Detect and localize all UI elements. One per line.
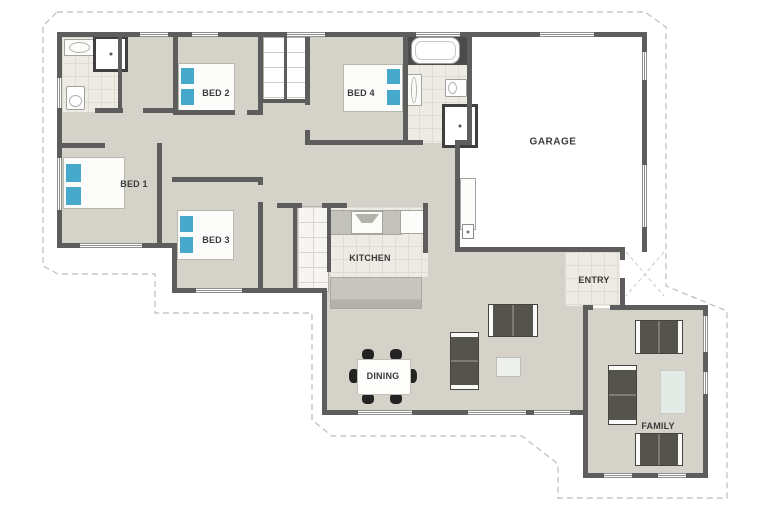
- bathroom-vanity-sink: [406, 74, 422, 106]
- wall-segment: [423, 203, 428, 253]
- window: [196, 288, 242, 293]
- window: [658, 473, 686, 478]
- pillow: [387, 90, 400, 105]
- pillow: [180, 216, 193, 232]
- wall-segment: [263, 99, 308, 103]
- wall-segment: [455, 140, 460, 252]
- bed2-bed: [178, 63, 235, 111]
- pillow: [387, 69, 400, 84]
- wall-segment: [172, 243, 177, 293]
- wall-segment: [258, 177, 263, 185]
- bed2-label: BED 2: [202, 88, 230, 98]
- kitchen-label: KITCHEN: [349, 253, 390, 263]
- bed3-label: BED 3: [202, 235, 230, 245]
- pillow: [66, 187, 81, 205]
- window: [534, 410, 570, 415]
- window: [192, 32, 218, 37]
- wall-segment: [95, 108, 123, 113]
- window: [703, 316, 708, 352]
- pillow: [181, 68, 194, 84]
- wall-segment: [157, 143, 162, 248]
- pillow: [180, 237, 193, 253]
- wall-segment: [277, 203, 302, 208]
- family-sofa-top: [635, 320, 683, 354]
- living-sofa-top: [488, 304, 538, 337]
- wall-segment: [284, 37, 287, 99]
- laundry-bench: [460, 178, 476, 230]
- wall-segment: [305, 140, 405, 145]
- stove-cooktop: [351, 211, 383, 234]
- wall-segment: [322, 203, 347, 208]
- dining-label: DINING: [367, 371, 400, 381]
- bed4-label: BED 4: [347, 88, 375, 98]
- pillow: [181, 89, 194, 105]
- window: [57, 78, 62, 108]
- wall-segment: [143, 108, 173, 113]
- window: [416, 32, 460, 37]
- window: [287, 32, 325, 37]
- window: [468, 410, 526, 415]
- window: [140, 32, 168, 37]
- wall-segment: [403, 140, 423, 145]
- wall-segment: [327, 206, 331, 272]
- wall-segment: [583, 305, 593, 310]
- floor-plan: GARAGE BED 1 BED 2 BED 3 BED 4 KITCHEN D…: [0, 0, 768, 512]
- wall-segment: [118, 37, 122, 108]
- porch-diagonals: [626, 252, 664, 296]
- living-sofa-left: [450, 332, 479, 390]
- wall-segment: [455, 247, 625, 252]
- window: [358, 410, 412, 415]
- wall-segment: [583, 305, 588, 478]
- wall-segment: [258, 202, 263, 293]
- wall-segment: [173, 37, 178, 115]
- pillow: [66, 164, 81, 182]
- wall-segment: [583, 473, 708, 478]
- family-rug: [660, 370, 686, 414]
- ensuite-toilet: [66, 86, 85, 110]
- wall-segment: [403, 32, 408, 144]
- wall-segment: [322, 288, 327, 415]
- window: [57, 158, 62, 210]
- window: [642, 165, 647, 227]
- bed1-label: BED 1: [120, 179, 148, 189]
- window: [642, 52, 647, 80]
- garage-label: GARAGE: [530, 137, 577, 148]
- window: [703, 372, 708, 394]
- family-sofa-bottom: [635, 433, 683, 466]
- family-label: FAMILY: [641, 421, 674, 431]
- entry-label: ENTRY: [578, 275, 609, 285]
- pantry: [297, 206, 329, 292]
- laundry-tub: [462, 224, 474, 239]
- coffee-table: [496, 357, 521, 377]
- family-sofa-left: [608, 365, 637, 425]
- wall-segment: [57, 143, 105, 148]
- window: [604, 473, 632, 478]
- bathroom-toilet: [445, 79, 467, 97]
- ensuite-vanity-sink: [64, 39, 95, 56]
- wall-segment: [258, 37, 263, 115]
- wall-segment: [172, 177, 263, 182]
- wall-segment: [467, 32, 472, 144]
- window: [540, 32, 594, 37]
- window: [80, 243, 142, 248]
- wall-segment: [620, 250, 625, 260]
- wall-segment: [620, 278, 625, 310]
- kitchen-island: [330, 277, 422, 309]
- wall-segment: [305, 37, 310, 105]
- wall-segment: [57, 32, 62, 248]
- wall-segment: [293, 206, 297, 290]
- wall-segment: [173, 110, 235, 115]
- bed1-bed: [63, 157, 125, 209]
- bathtub: [411, 37, 460, 64]
- ensuite-shower: [93, 36, 128, 72]
